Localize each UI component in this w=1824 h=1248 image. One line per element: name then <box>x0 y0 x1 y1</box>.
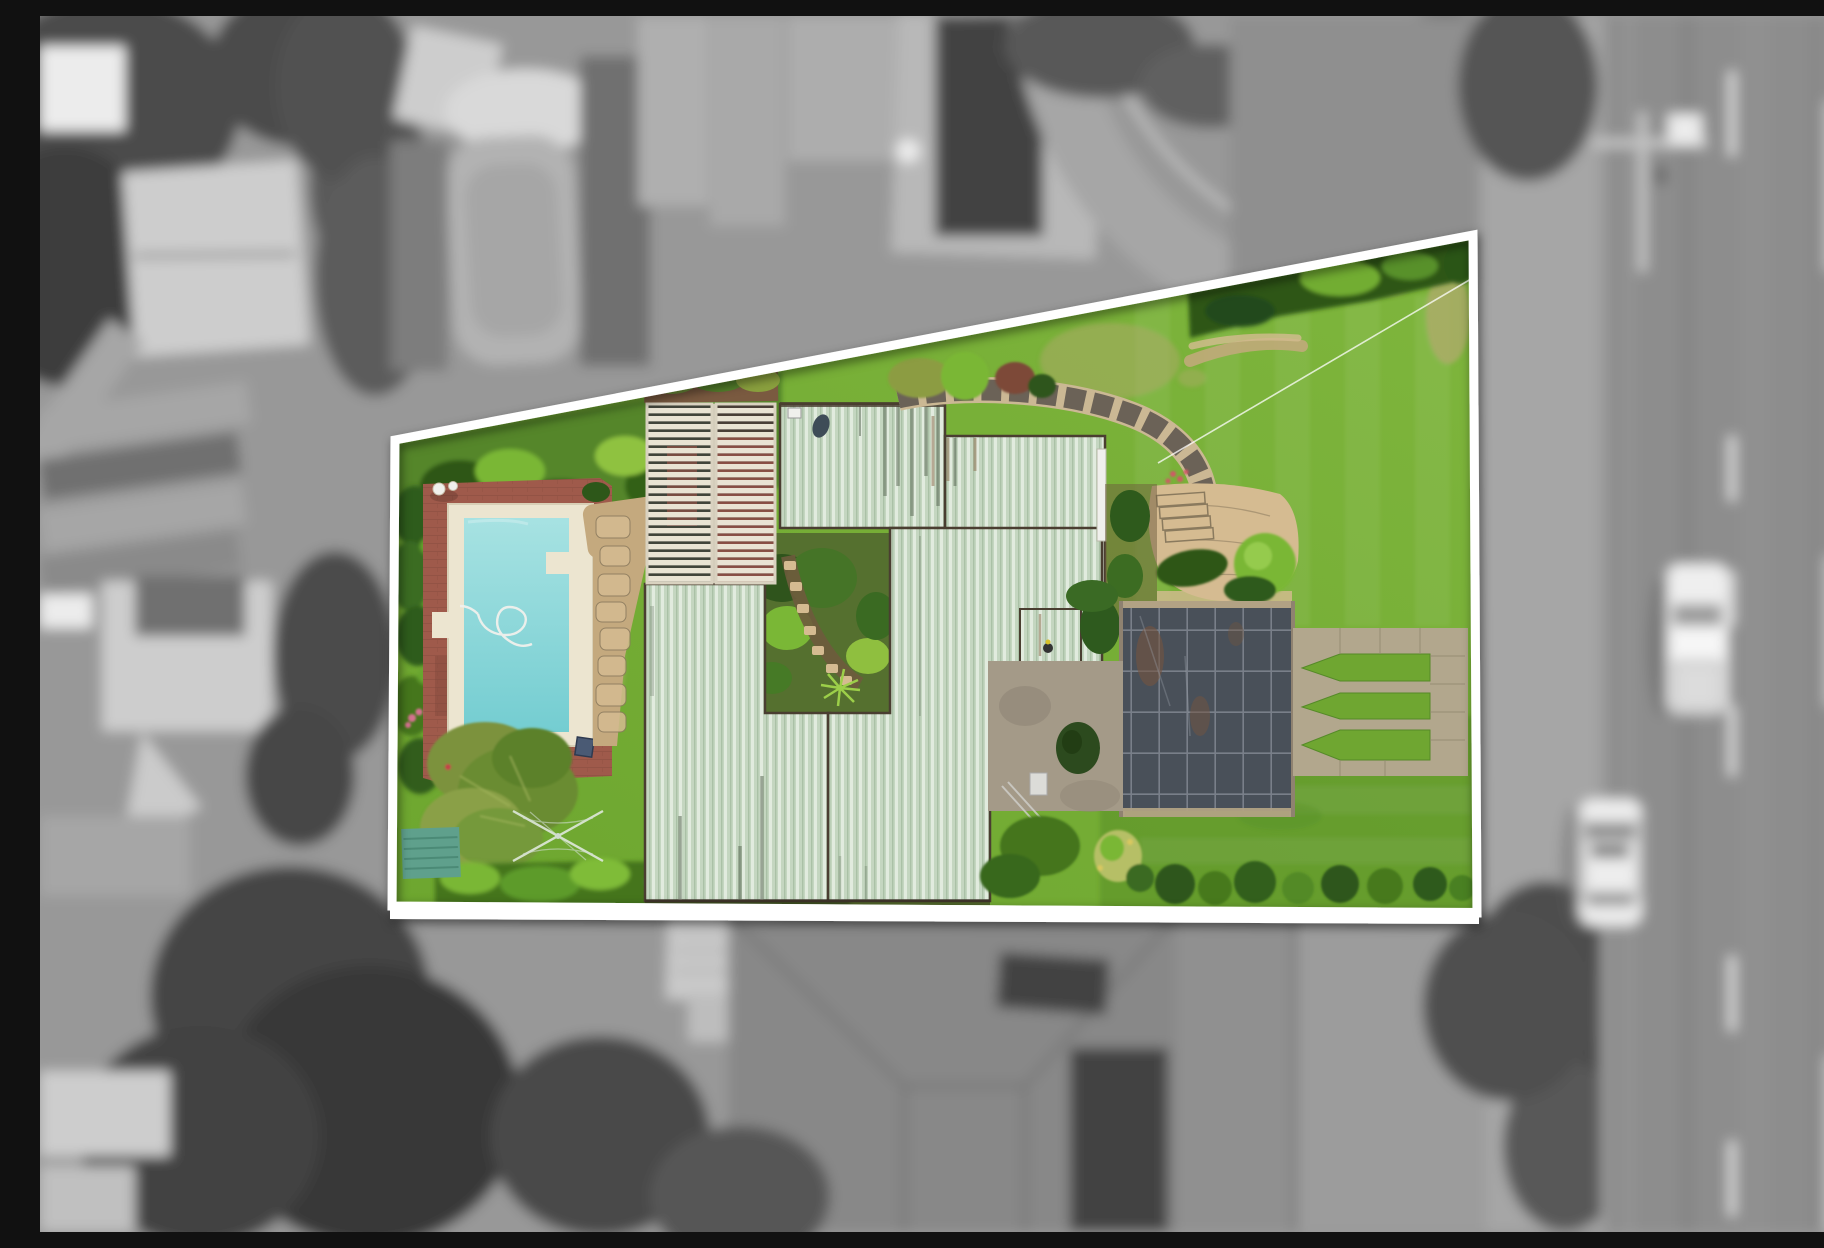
white-ute <box>1648 564 1728 716</box>
garden-statue <box>433 483 445 495</box>
roof-vent-white <box>788 408 801 418</box>
deck-blue-box <box>575 737 594 757</box>
pool-step-bump <box>432 612 450 638</box>
roof-skylight <box>1097 449 1106 541</box>
ac-unit <box>1030 773 1047 795</box>
aerial-photo-stage: Top-down real-estate drone photo. The su… <box>40 16 1824 1232</box>
pool-coping-notch <box>546 552 571 574</box>
aerial-photo <box>40 16 1824 1232</box>
pointed-lawn-islands <box>1293 628 1468 776</box>
shade-frame-bottom <box>1123 808 1291 817</box>
white-trailer <box>40 594 92 628</box>
garden-steps <box>1157 492 1214 543</box>
shade-structure <box>1119 601 1295 817</box>
gravel-court <box>988 661 1123 828</box>
pool-water <box>464 518 569 732</box>
roof-north-wing <box>780 404 945 528</box>
pergola <box>644 360 780 583</box>
garden-shed <box>401 827 461 879</box>
white-car <box>1561 799 1642 926</box>
neighbor-roof <box>122 160 309 357</box>
